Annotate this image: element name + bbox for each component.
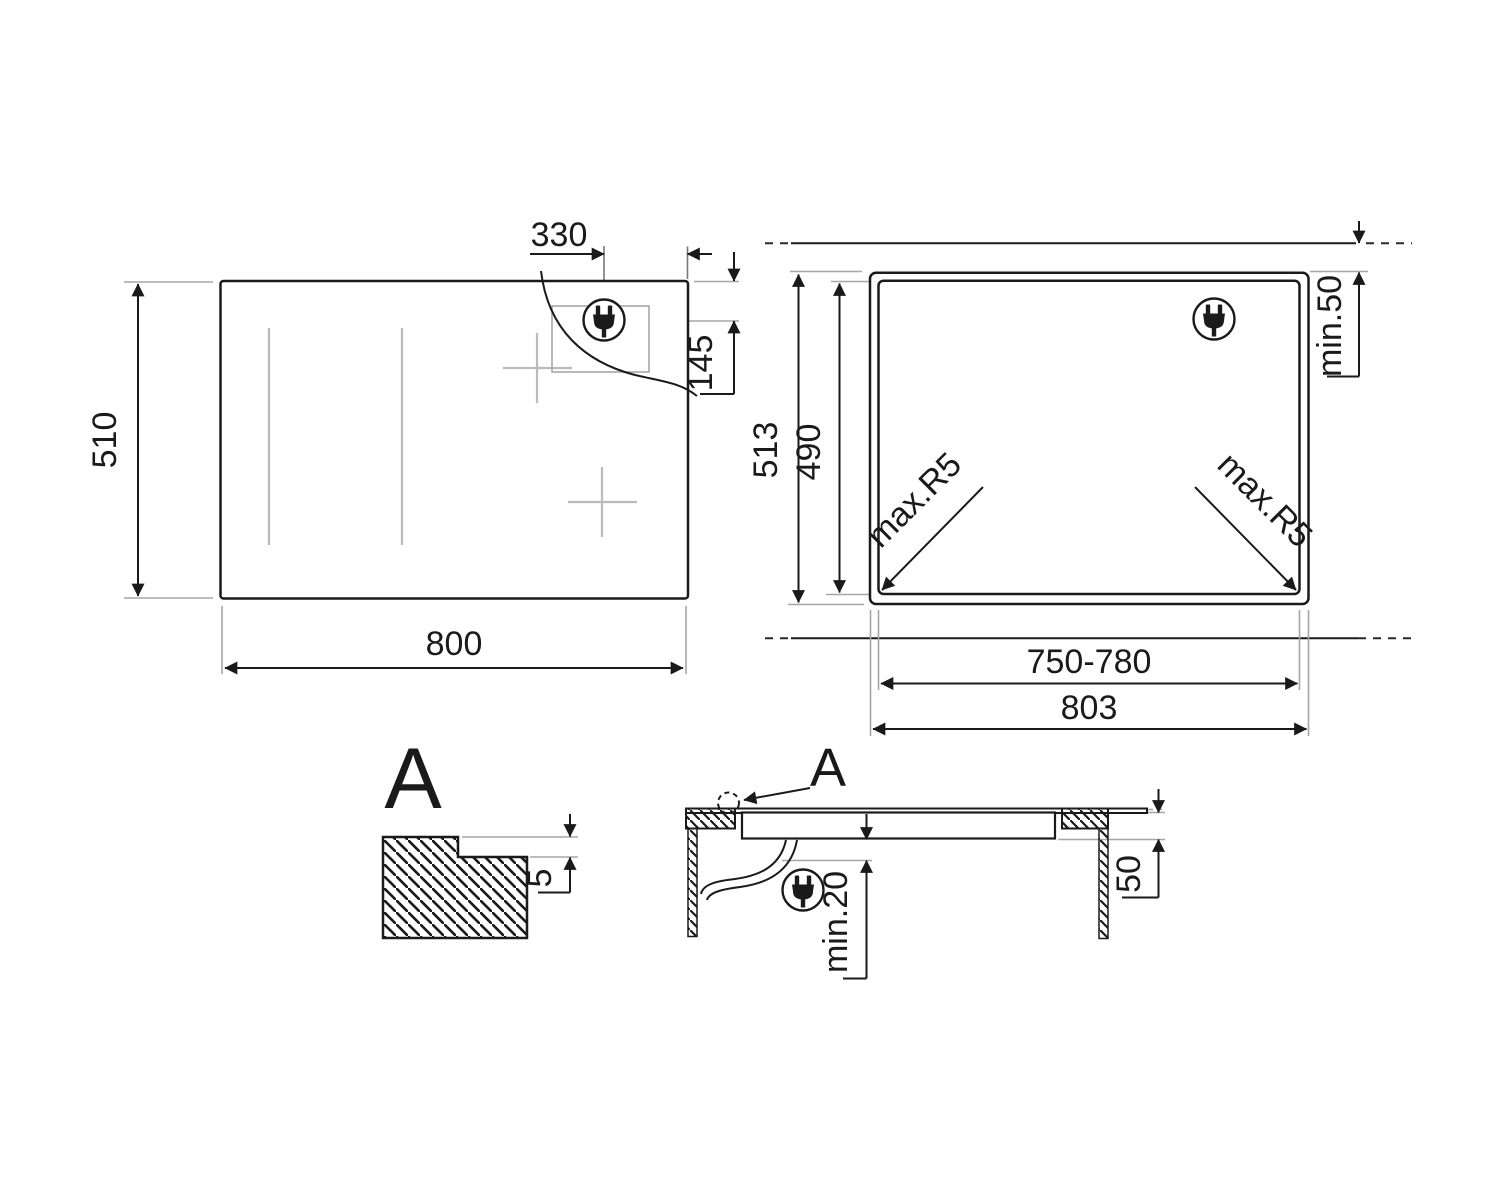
dim-label-513: 513 <box>747 422 785 479</box>
dim-label-803: 803 <box>1061 689 1118 727</box>
power-plug-icon <box>584 300 625 341</box>
dim-label-min20: min.20 <box>817 871 855 973</box>
dim-plug-offset-x: 330 <box>530 216 712 254</box>
dim-label-50: 50 <box>1110 855 1148 893</box>
section-detail-label: A <box>810 738 846 798</box>
dim-label-min50: min.50 <box>1311 275 1349 377</box>
dim-label-490: 490 <box>790 424 828 481</box>
dim-top-clearance: min.50 <box>1311 221 1359 377</box>
dim-label-5: 5 <box>521 869 559 888</box>
worktop-rebate-section <box>383 837 527 938</box>
dim-label-750-780: 750-780 <box>1027 643 1152 681</box>
cutout-inner-rect <box>879 281 1300 594</box>
dim-cutout-inner-height: 490 <box>790 284 840 593</box>
detail-title: A <box>384 731 442 827</box>
worktop-section-right <box>1062 809 1108 829</box>
dim-step-depth: 5 <box>521 814 570 893</box>
dim-plug-offset-y: 145 <box>682 252 734 394</box>
dim-plan-height: 510 <box>86 284 138 596</box>
worktop-section-left <box>686 809 735 829</box>
dim-cutout-inner-width: 750-780 <box>881 643 1298 684</box>
section-view: A min.20 50 <box>686 738 1165 979</box>
detail-leader <box>744 788 810 800</box>
dim-label-510: 510 <box>86 412 124 469</box>
dim-label-145: 145 <box>682 335 720 392</box>
dim-plan-width: 800 <box>225 625 683 668</box>
dim-label-330: 330 <box>531 216 588 254</box>
detail-a-view: A 5 <box>383 731 578 938</box>
installation-drawing: 330 145 510 800 <box>0 0 1500 1199</box>
cutout-view: 513 490 min.50 max.R5 max.R5 750-780 <box>747 221 1413 736</box>
drawing-svg: 330 145 510 800 <box>0 0 1500 1199</box>
power-plug-icon <box>1194 299 1235 340</box>
cabinet-panel-left <box>688 829 697 937</box>
plan-view: 330 145 510 800 <box>86 216 739 674</box>
dim-recess-depth: 50 <box>1110 789 1159 898</box>
hob-body <box>742 813 1055 839</box>
dim-cutout-outer-width: 803 <box>873 689 1307 729</box>
cabinet-panel-right <box>1099 829 1108 939</box>
dim-label-800: 800 <box>426 625 483 663</box>
